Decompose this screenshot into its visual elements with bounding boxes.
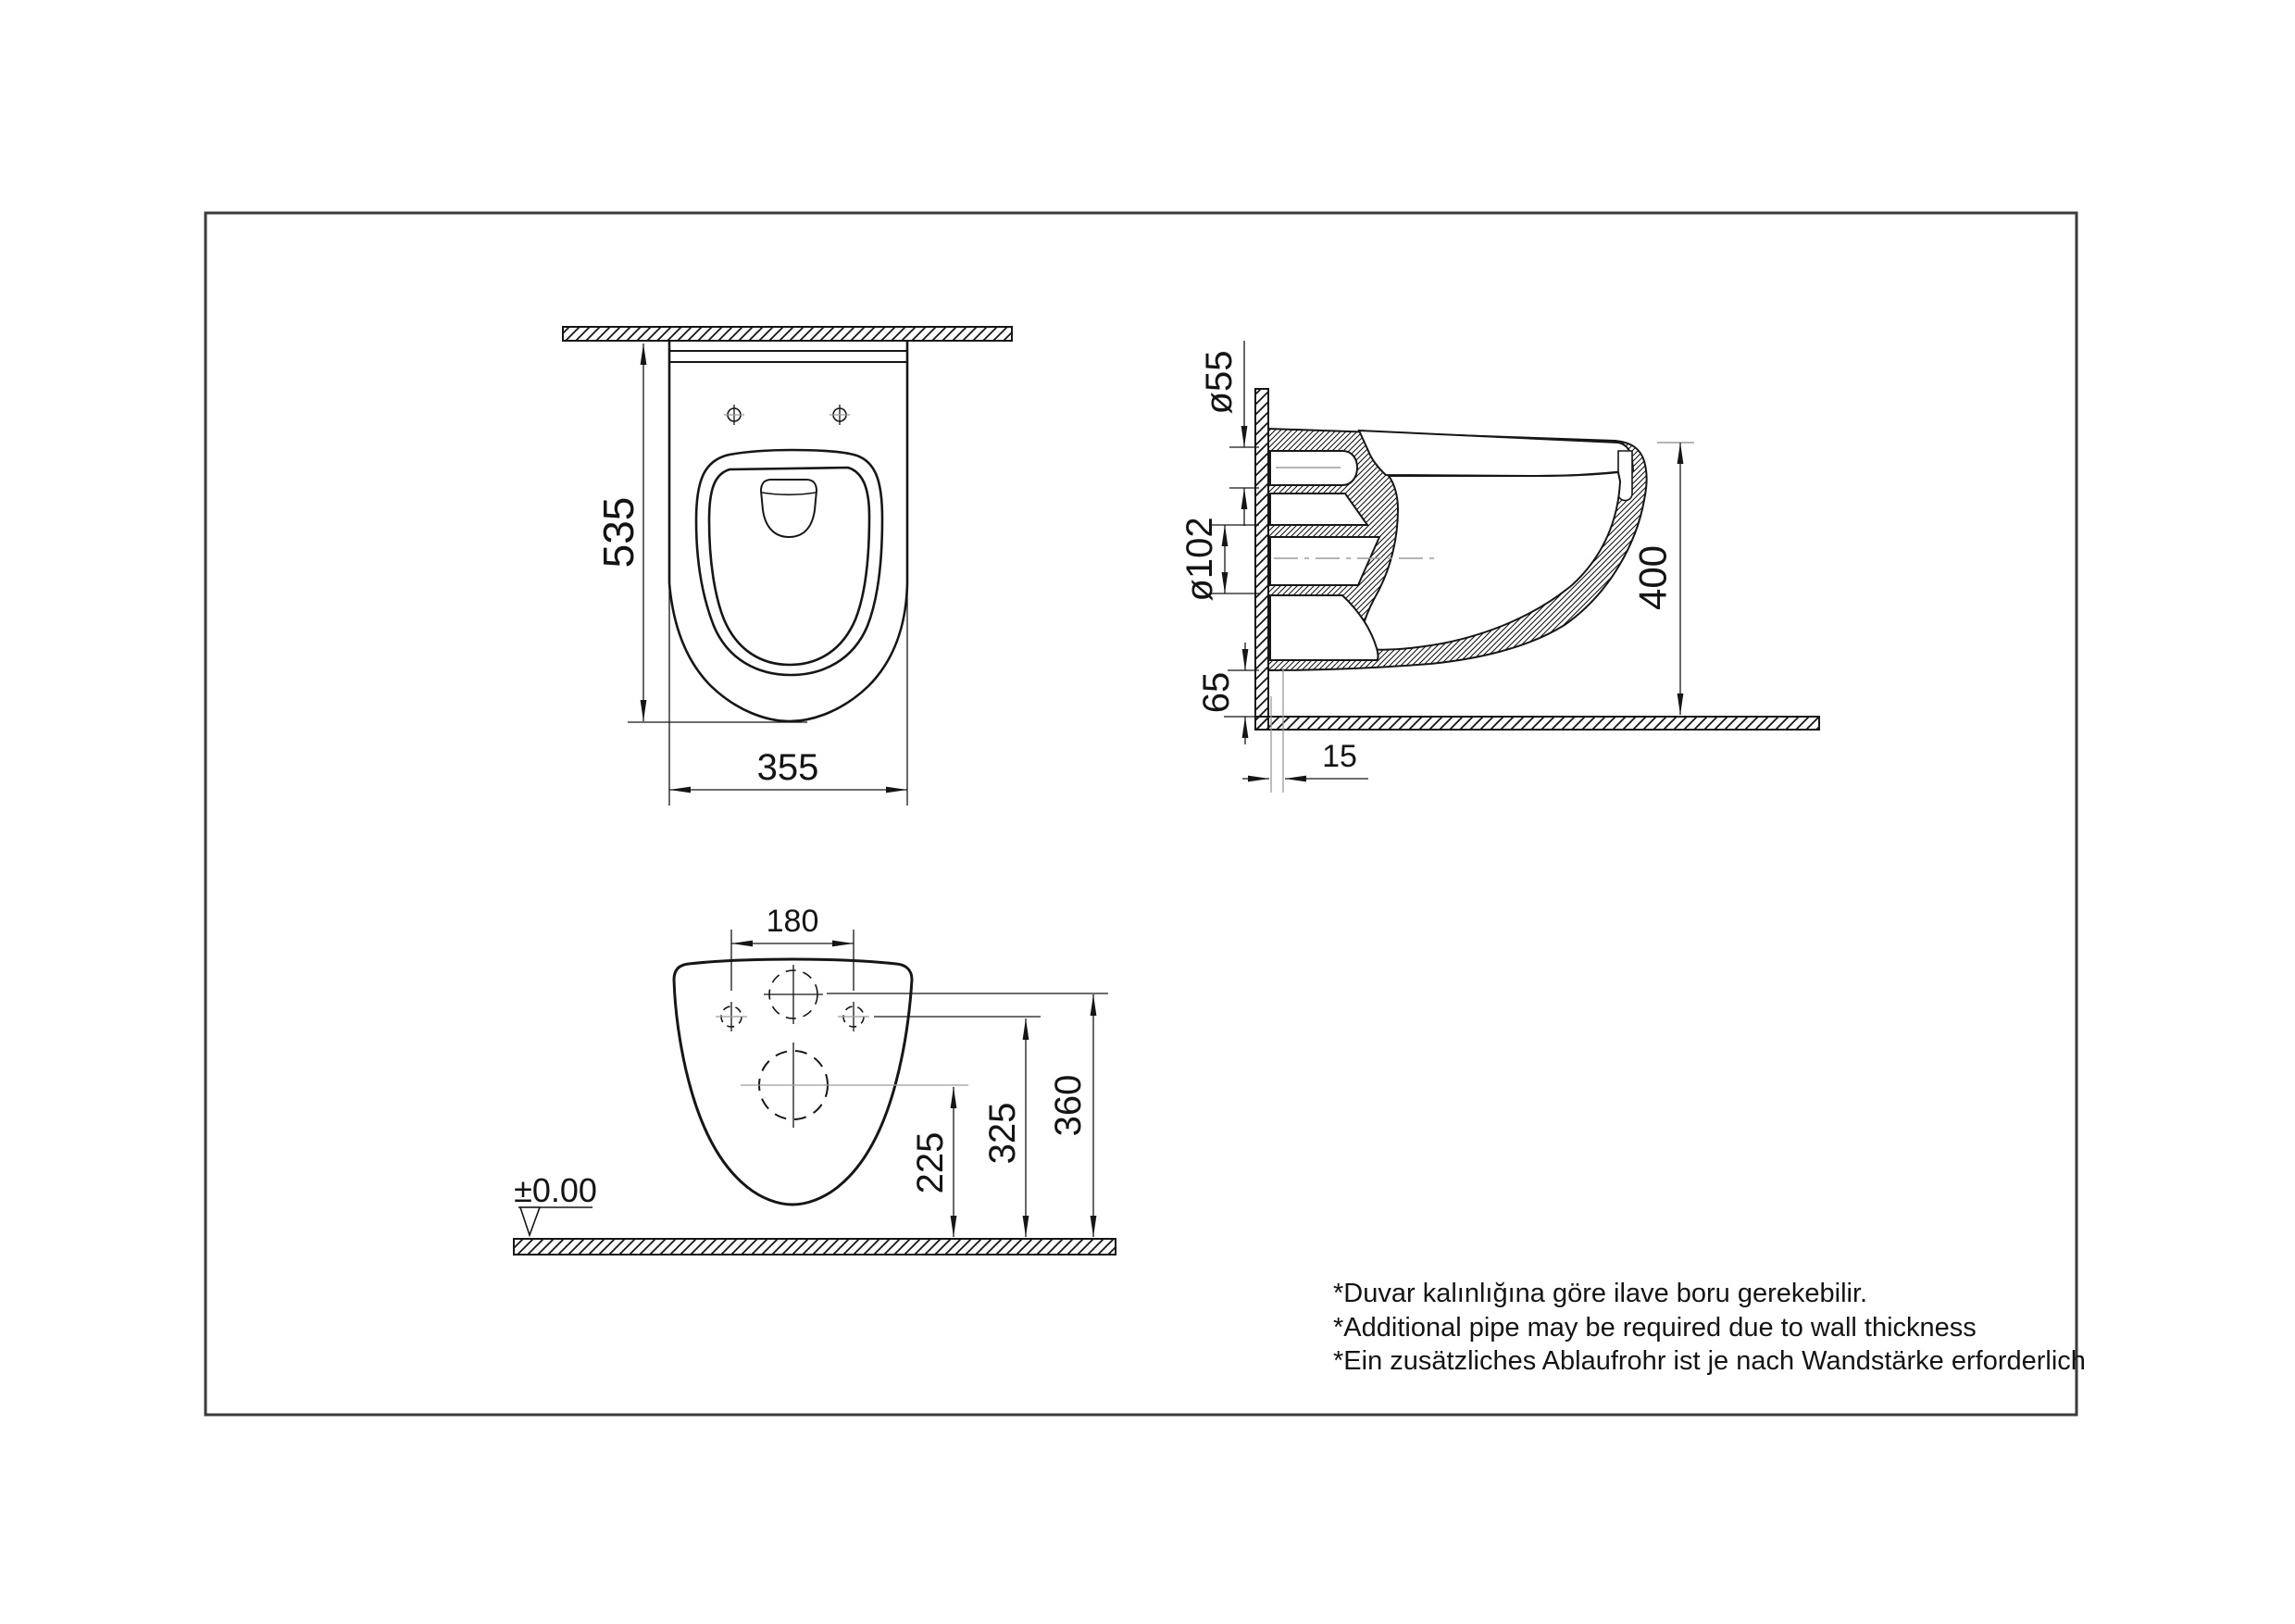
seat-hinge-holes <box>724 405 850 425</box>
bolt-spacing-label: 180 <box>767 904 819 939</box>
bowl-outer-outline <box>669 583 907 721</box>
wall-thickness-label: 15 <box>1322 739 1357 774</box>
flush-cup <box>761 480 817 537</box>
technical-drawing-svg: 535 355 <box>0 0 2295 1624</box>
footnote-german: *Ein zusätzliches Ablaufrohr ist je nach… <box>1333 1346 2086 1376</box>
bolt-height-label: 325 <box>982 1103 1023 1165</box>
footnote-english: *Additional pipe may be required due to … <box>1333 1313 1977 1343</box>
floor-section-side <box>1255 717 1819 730</box>
fixing-bolt-holes <box>716 1002 869 1031</box>
back-view: 180 225 325 360 ±0.00 <box>514 904 1116 1255</box>
footnote-turkish: *Duvar kalınlığına göre ilave boru gerek… <box>1333 1279 1867 1308</box>
outlet-hole <box>741 1043 968 1128</box>
outlet-height-label: 225 <box>910 1132 951 1194</box>
outlet-diameter-label: ø102 <box>1179 517 1220 601</box>
inlet-height-label: 360 <box>1048 1075 1089 1137</box>
seat-outer-outline <box>696 450 882 675</box>
floor-datum-symbol <box>518 1207 592 1235</box>
wall-section-front <box>563 327 1012 341</box>
floor-section-back <box>514 1239 1116 1255</box>
side-view: ø55 ø102 65 400 15 <box>1179 341 1819 793</box>
back-ledge-lines <box>669 351 907 362</box>
toilet-body-sides <box>669 341 907 583</box>
drawing-sheet: 535 355 <box>0 0 2295 1624</box>
sheet-border <box>206 213 2077 1415</box>
seat-opening-outline <box>709 468 869 665</box>
section-cavities <box>1270 431 1633 660</box>
front-width-label: 355 <box>757 747 819 788</box>
inlet-diameter-label: ø55 <box>1199 351 1240 415</box>
footnotes: *Duvar kalınlığına göre ilave boru gerek… <box>1333 1279 2086 1376</box>
front-view: 535 355 <box>563 327 1012 806</box>
floor-datum-label: ±0.00 <box>514 1171 597 1209</box>
floor-clearance-label: 65 <box>1196 672 1237 714</box>
rim-height-label: 400 <box>1631 545 1675 610</box>
front-height-label: 535 <box>594 497 642 568</box>
wall-section-side <box>1255 389 1268 730</box>
inlet-hole <box>764 965 823 1024</box>
